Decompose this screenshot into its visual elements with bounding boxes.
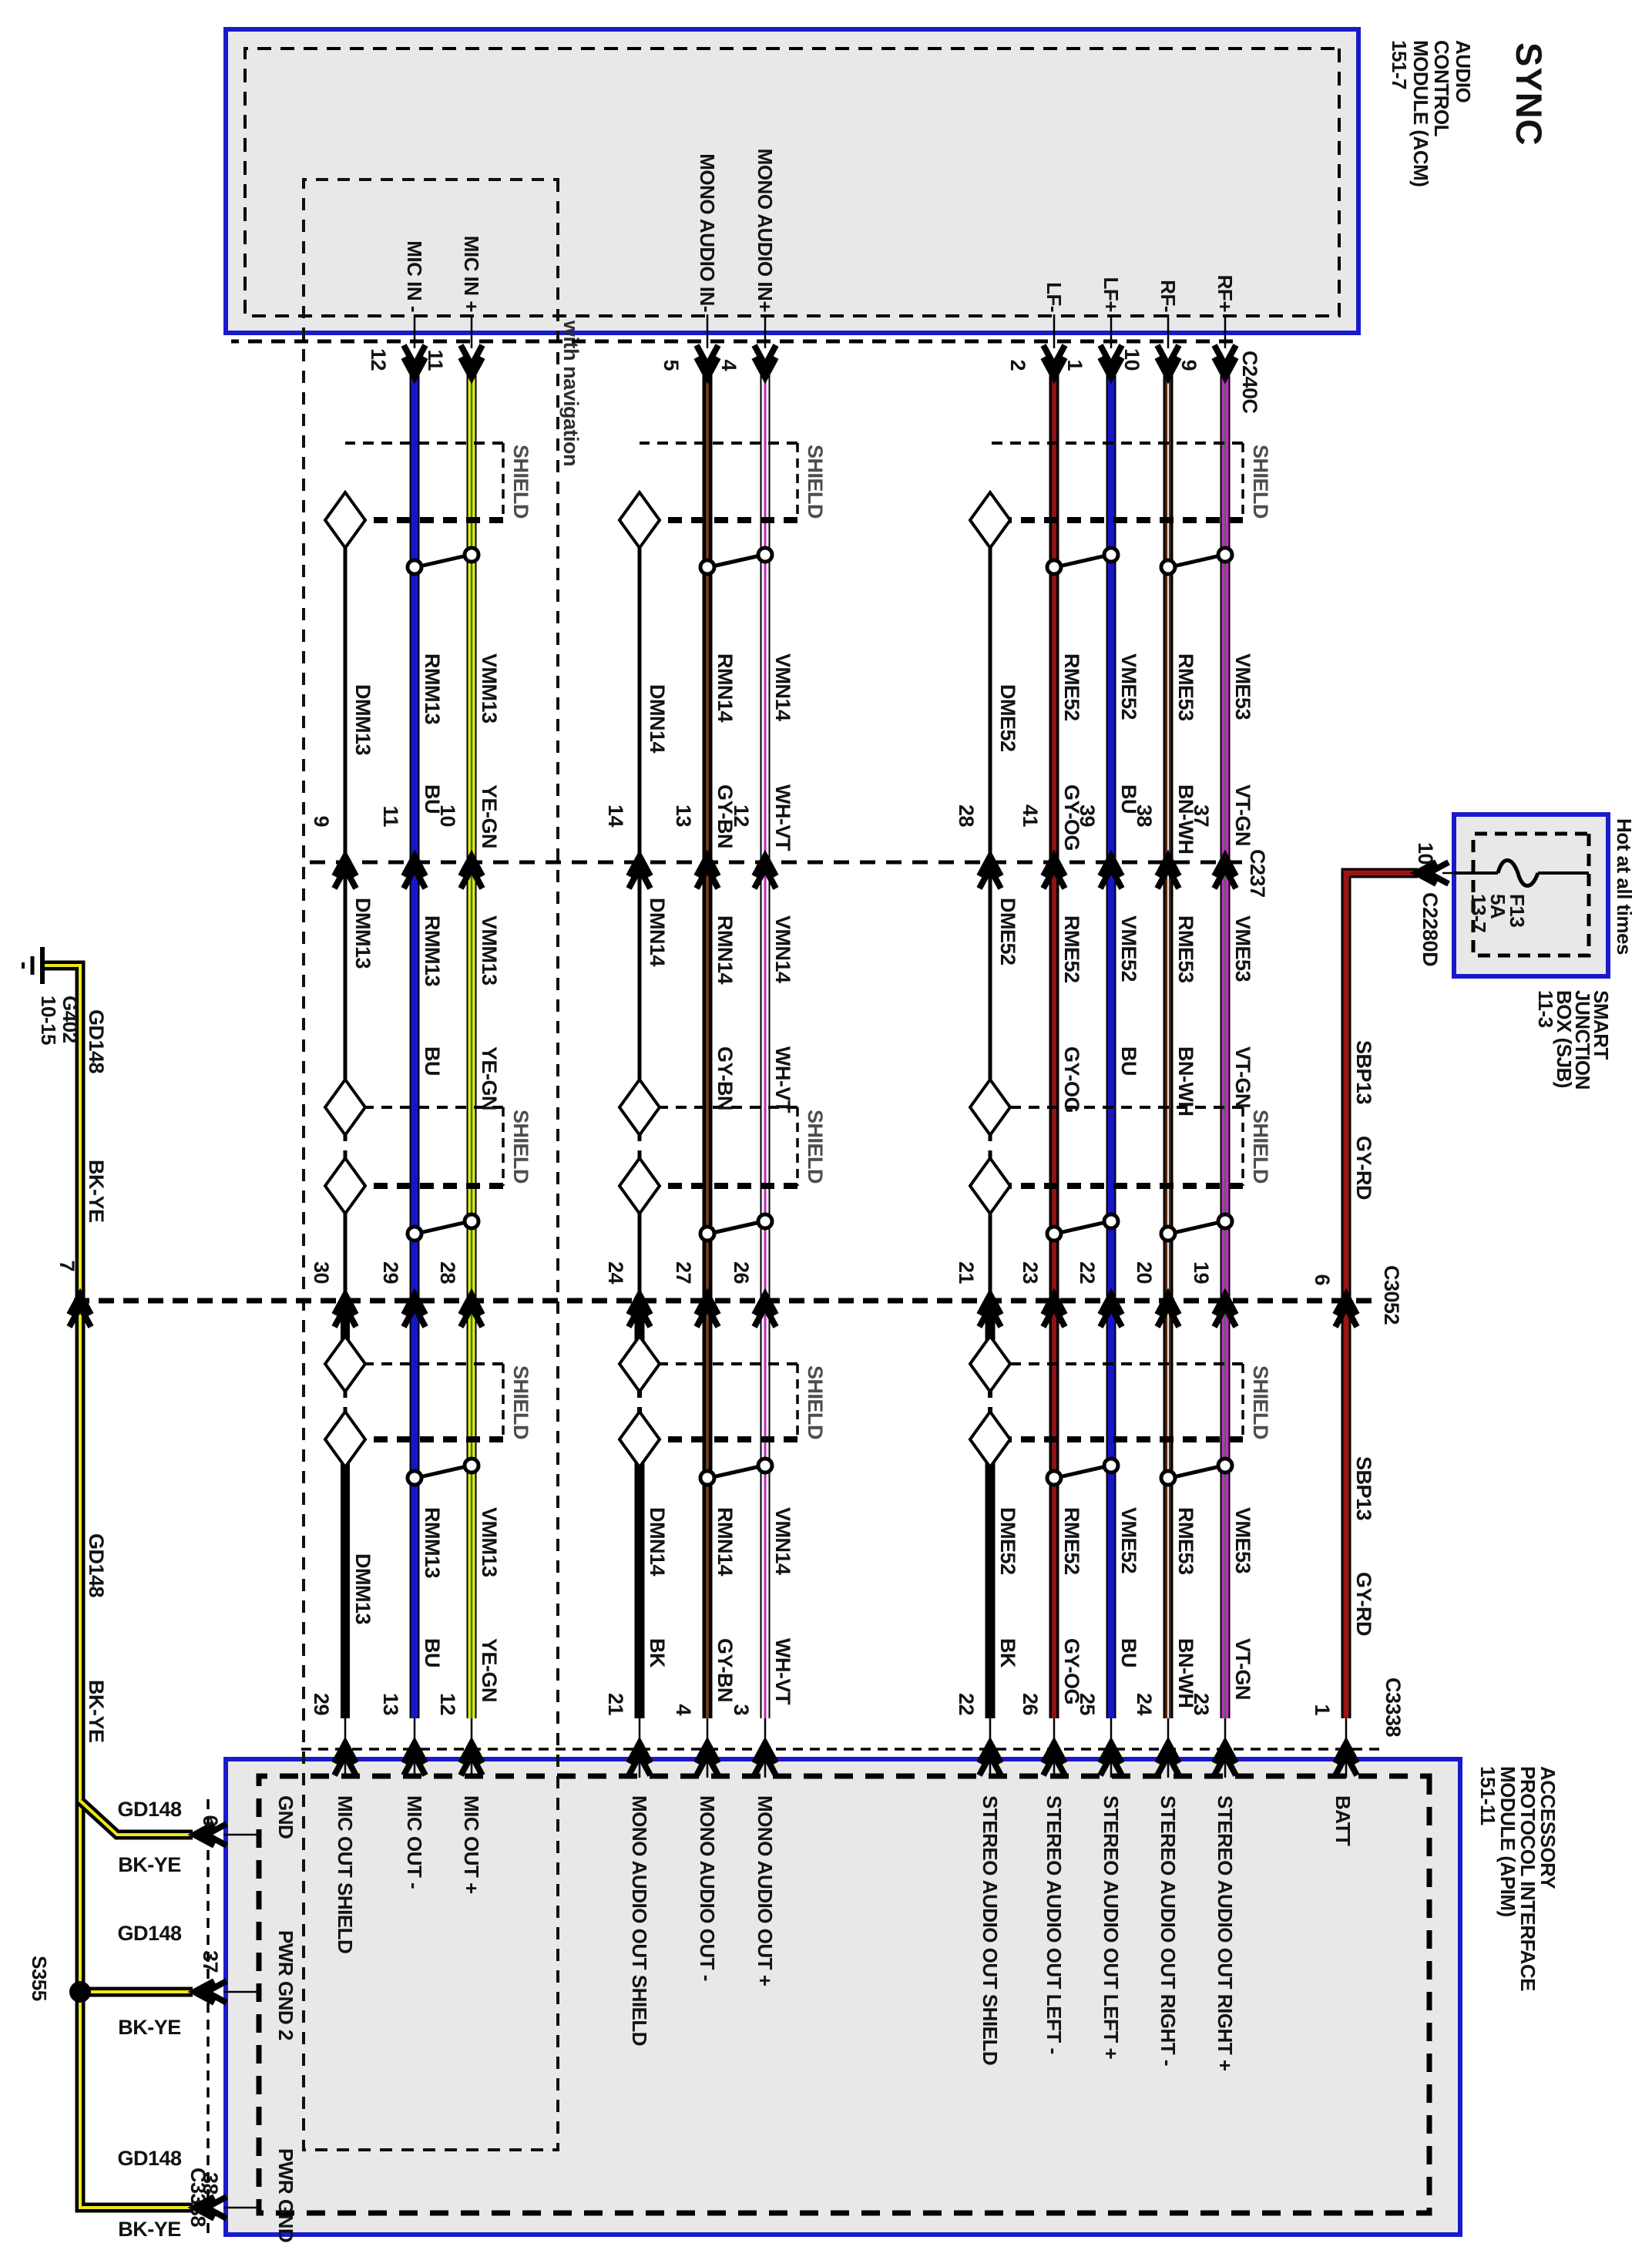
svg-text:12: 12	[367, 348, 390, 371]
svg-text:1: 1	[1311, 1704, 1334, 1715]
svg-text:12: 12	[436, 1693, 459, 1715]
apim-title: ACCESSORY PROTOCOL INTERFACE MODULE (API…	[1476, 1766, 1560, 1991]
svg-text:RMN14: RMN14	[714, 653, 737, 723]
svg-text:4: 4	[672, 1704, 695, 1715]
svg-text:MODULE (APIM): MODULE (APIM)	[1496, 1766, 1519, 1917]
svg-text:24: 24	[604, 1261, 627, 1285]
c3338-label: C3338	[1382, 1677, 1405, 1738]
svg-text:VMN14: VMN14	[771, 915, 794, 983]
svg-text:YE-GN: YE-GN	[478, 784, 501, 848]
svg-text:DMN14: DMN14	[646, 684, 669, 754]
svg-text:GD148: GD148	[85, 1009, 108, 1074]
svg-text:21: 21	[955, 1261, 978, 1285]
svg-text:6: 6	[1311, 1274, 1334, 1285]
svg-text:BK: BK	[646, 1638, 669, 1668]
svg-text:24: 24	[1133, 1693, 1156, 1716]
svg-text:7: 7	[55, 1260, 79, 1271]
svg-text:26: 26	[730, 1261, 753, 1285]
svg-text:GY-OG: GY-OG	[1060, 1046, 1083, 1113]
acm-pin-numbers: 12 11 5 4 2 1 10 9	[367, 348, 1200, 371]
svg-text:BU: BU	[1117, 1046, 1140, 1076]
svg-text:GY-OG: GY-OG	[1060, 1638, 1083, 1704]
svg-text:BK-YE: BK-YE	[118, 2218, 181, 2241]
svg-text:20: 20	[1133, 1261, 1156, 1284]
svg-text:MIC OUT SHIELD: MIC OUT SHIELD	[334, 1795, 357, 1953]
svg-text:RMM13: RMM13	[421, 1507, 444, 1578]
svg-text:RME53: RME53	[1174, 915, 1197, 983]
svg-text:YE-GN: YE-GN	[478, 1638, 501, 1702]
svg-text:RME52: RME52	[1060, 653, 1083, 721]
svg-text:4: 4	[717, 359, 740, 371]
svg-text:10-15: 10-15	[37, 996, 60, 1045]
svg-text:DME52: DME52	[996, 898, 1019, 965]
svg-text:VT-GN: VT-GN	[1231, 1638, 1254, 1700]
svg-text:DMM13: DMM13	[351, 684, 374, 755]
svg-text:9: 9	[1177, 359, 1200, 371]
svg-text:GY-BN: GY-BN	[714, 1046, 737, 1110]
c3052-pin-numbers: 30 29 28 24 27 26 21 23 22 20 19 6 7	[55, 1260, 1334, 1285]
svg-text:VMN14: VMN14	[771, 1507, 794, 1575]
svg-text:STEREO AUDIO OUT LEFT +: STEREO AUDIO OUT LEFT +	[1100, 1795, 1123, 2059]
svg-text:PROTOCOL INTERFACE: PROTOCOL INTERFACE	[1516, 1766, 1540, 1991]
svg-text:BN-WH: BN-WH	[1174, 1046, 1197, 1116]
svg-text:11: 11	[424, 349, 447, 371]
shield-label: SHIELD	[804, 445, 827, 519]
svg-text:5: 5	[660, 359, 683, 371]
svg-text:BN-WH: BN-WH	[1174, 1638, 1197, 1708]
svg-text:BK-YE: BK-YE	[118, 2016, 181, 2039]
ground-symbol-g402	[23, 947, 42, 984]
svg-text:9: 9	[310, 815, 333, 827]
shield-label: SHIELD	[804, 1365, 827, 1439]
acm-module-box	[226, 29, 1358, 333]
shield-label: SHIELD	[509, 1110, 532, 1184]
shield-label: SHIELD	[1249, 1110, 1272, 1184]
shield-label: SHIELD	[509, 1365, 532, 1439]
svg-text:RMM13: RMM13	[421, 653, 444, 724]
svg-text:RME53: RME53	[1174, 1507, 1197, 1575]
svg-text:22: 22	[955, 1693, 978, 1715]
svg-text:PWR GND 2: PWR GND 2	[274, 1930, 297, 2040]
svg-text:RMN14: RMN14	[714, 1507, 737, 1577]
svg-text:WH-VT: WH-VT	[771, 784, 794, 851]
svg-text:RMN14: RMN14	[714, 915, 737, 985]
svg-text:VME52: VME52	[1117, 915, 1140, 982]
svg-text:SBP13: SBP13	[1352, 1040, 1375, 1105]
svg-text:19: 19	[1190, 1261, 1213, 1285]
c2280d-label: C2280D	[1419, 892, 1442, 966]
svg-text:STEREO AUDIO OUT SHIELD: STEREO AUDIO OUT SHIELD	[979, 1795, 1002, 2065]
svg-text:STEREO AUDIO OUT LEFT -: STEREO AUDIO OUT LEFT -	[1043, 1795, 1066, 2054]
svg-text:VME53: VME53	[1231, 1507, 1254, 1574]
svg-text:1: 1	[1063, 359, 1086, 371]
wire-labels-upper: DMM13 RMM13BU VMM13YE-GN DMN14 RMN14GY-B…	[351, 653, 1254, 854]
svg-text:BK-YE: BK-YE	[85, 1680, 108, 1743]
svg-text:VMN14: VMN14	[771, 653, 794, 721]
svg-text:RMM13: RMM13	[421, 915, 444, 986]
svg-text:GD148: GD148	[117, 1922, 182, 1945]
svg-text:MIC IN -: MIC IN -	[403, 240, 426, 312]
svg-text:VMM13: VMM13	[478, 1507, 501, 1577]
svg-text:RME52: RME52	[1060, 915, 1083, 983]
svg-text:VMM13: VMM13	[478, 915, 501, 986]
svg-text:MONO AUDIO OUT +: MONO AUDIO OUT +	[754, 1795, 777, 1986]
svg-text:YE-GN: YE-GN	[478, 1046, 501, 1110]
svg-text:41: 41	[1019, 804, 1042, 828]
svg-text:VT-GN: VT-GN	[1231, 1046, 1254, 1108]
c240c-label: C240C	[1238, 351, 1261, 414]
svg-text:BK: BK	[996, 1638, 1019, 1668]
svg-text:BN-WH: BN-WH	[1174, 784, 1197, 854]
svg-text:AUDIO: AUDIO	[1452, 40, 1475, 103]
wiring-diagram-page: with navigation C240C C237 C3052 C3338 C…	[0, 0, 1652, 2250]
svg-text:BATT: BATT	[1331, 1795, 1355, 1846]
sjb-pin-number: 10	[1414, 842, 1437, 865]
svg-text:GD148: GD148	[85, 1533, 108, 1598]
svg-text:VME52: VME52	[1117, 653, 1140, 720]
svg-text:MONO AUDIO IN-: MONO AUDIO IN-	[696, 153, 719, 312]
svg-text:GY-BN: GY-BN	[714, 784, 737, 848]
svg-text:GD148: GD148	[117, 2147, 182, 2170]
svg-text:GY-OG: GY-OG	[1060, 784, 1083, 851]
svg-text:151-11: 151-11	[1476, 1766, 1499, 1825]
svg-text:LF+: LF+	[1100, 277, 1123, 313]
svg-text:22: 22	[1076, 1261, 1099, 1284]
svg-text:37: 37	[199, 1950, 222, 1973]
svg-text:BK-YE: BK-YE	[85, 1160, 108, 1223]
svg-text:38: 38	[199, 2172, 222, 2195]
page-title: SYNC	[1509, 42, 1550, 146]
c3052-label: C3052	[1380, 1265, 1403, 1325]
svg-text:MONO AUDIO IN+: MONO AUDIO IN+	[754, 149, 777, 313]
svg-text:29: 29	[310, 1693, 333, 1716]
svg-text:29: 29	[379, 1261, 402, 1285]
c237-label: C237	[1246, 849, 1269, 898]
svg-text:PWR GND: PWR GND	[274, 2148, 297, 2242]
svg-text:13-7: 13-7	[1467, 894, 1490, 932]
svg-text:DME52: DME52	[996, 1507, 1019, 1575]
svg-text:WH-VT: WH-VT	[771, 1046, 794, 1113]
svg-text:DMM13: DMM13	[351, 1553, 374, 1624]
svg-text:MIC OUT -: MIC OUT -	[403, 1795, 426, 1889]
svg-text:13: 13	[672, 804, 695, 828]
svg-text:23: 23	[1019, 1261, 1042, 1285]
svg-text:LF-: LF-	[1043, 282, 1066, 312]
svg-text:MODULE (ACM): MODULE (ACM)	[1409, 40, 1432, 186]
svg-text:DME52: DME52	[996, 684, 1019, 752]
svg-text:10: 10	[1120, 348, 1143, 371]
shield-label: SHIELD	[1249, 1365, 1272, 1439]
svg-text:BU: BU	[421, 1638, 444, 1667]
svg-text:GND: GND	[274, 1795, 297, 1839]
svg-text:11: 11	[379, 805, 402, 827]
svg-text:30: 30	[310, 1261, 333, 1284]
svg-text:MIC IN +: MIC IN +	[460, 236, 483, 313]
svg-text:VME53: VME53	[1231, 915, 1254, 982]
svg-text:RME53: RME53	[1174, 653, 1197, 721]
svg-text:11-3: 11-3	[1534, 990, 1557, 1028]
shield-label: SHIELD	[804, 1110, 827, 1184]
svg-text:VMM13: VMM13	[478, 653, 501, 724]
svg-text:28: 28	[436, 1261, 459, 1285]
shield-label: SHIELD	[1249, 445, 1272, 519]
svg-text:BU: BU	[1117, 784, 1140, 814]
svg-text:GY-RD: GY-RD	[1352, 1136, 1375, 1200]
hot-at-all-times-label: Hot at all times	[1613, 818, 1636, 955]
svg-text:MONO AUDIO OUT SHIELD: MONO AUDIO OUT SHIELD	[628, 1795, 651, 2046]
svg-text:STEREO AUDIO OUT RIGHT -: STEREO AUDIO OUT RIGHT -	[1157, 1795, 1180, 2066]
shield-label: SHIELD	[509, 445, 532, 519]
svg-text:DMN14: DMN14	[646, 898, 669, 967]
svg-text:DMN14: DMN14	[646, 1507, 669, 1577]
svg-text:GY-RD: GY-RD	[1352, 1572, 1375, 1636]
svg-text:ACCESSORY: ACCESSORY	[1536, 1766, 1560, 1889]
acm-title: AUDIO CONTROL MODULE (ACM) 151-7	[1388, 40, 1475, 186]
sync-wiring-diagram: with navigation C240C C237 C3052 C3338 C…	[0, 0, 1652, 2250]
svg-text:BU: BU	[1117, 1638, 1140, 1667]
svg-text:GD148: GD148	[117, 1798, 182, 1821]
svg-text:VT-GN: VT-GN	[1231, 784, 1254, 846]
svg-text:MONO AUDIO OUT -: MONO AUDIO OUT -	[696, 1795, 719, 1981]
svg-text:VME52: VME52	[1117, 1507, 1140, 1573]
svg-text:BU: BU	[421, 784, 444, 814]
svg-text:SBP13: SBP13	[1352, 1456, 1375, 1521]
sjb-title: SMART JUNCTION BOX (SJB) 11-3	[1534, 990, 1613, 1090]
svg-text:151-7: 151-7	[1388, 40, 1411, 89]
svg-text:BU: BU	[421, 1046, 444, 1076]
svg-text:DMM13: DMM13	[351, 898, 374, 969]
svg-text:27: 27	[672, 1261, 695, 1284]
svg-text:WH-VT: WH-VT	[771, 1638, 794, 1705]
svg-text:21: 21	[604, 1693, 627, 1716]
svg-text:G402: G402	[59, 996, 82, 1043]
svg-text:26: 26	[1019, 1693, 1042, 1716]
svg-text:28: 28	[955, 804, 978, 828]
svg-text:S355: S355	[28, 1956, 51, 2001]
svg-text:BK-YE: BK-YE	[118, 1853, 181, 1876]
svg-text:2: 2	[1006, 359, 1029, 371]
svg-text:RF+: RF+	[1214, 275, 1237, 313]
svg-text:14: 14	[604, 804, 627, 828]
svg-text:3: 3	[730, 1704, 753, 1715]
svg-text:VME53: VME53	[1231, 653, 1254, 720]
svg-text:RF-: RF-	[1157, 280, 1180, 312]
svg-text:RME52: RME52	[1060, 1507, 1083, 1575]
splice-s355	[69, 1981, 91, 2003]
svg-text:13: 13	[379, 1693, 402, 1716]
svg-text:MIC OUT +: MIC OUT +	[460, 1795, 483, 1894]
ground-labels: G402 10-15 S355 GD148 BK-YE GD148 BK-YE …	[28, 996, 182, 2241]
svg-text:STEREO AUDIO OUT RIGHT +: STEREO AUDIO OUT RIGHT +	[1214, 1795, 1237, 2071]
svg-text:6: 6	[199, 1815, 222, 1826]
svg-text:GY-BN: GY-BN	[714, 1638, 737, 1702]
svg-text:CONTROL: CONTROL	[1430, 40, 1453, 137]
